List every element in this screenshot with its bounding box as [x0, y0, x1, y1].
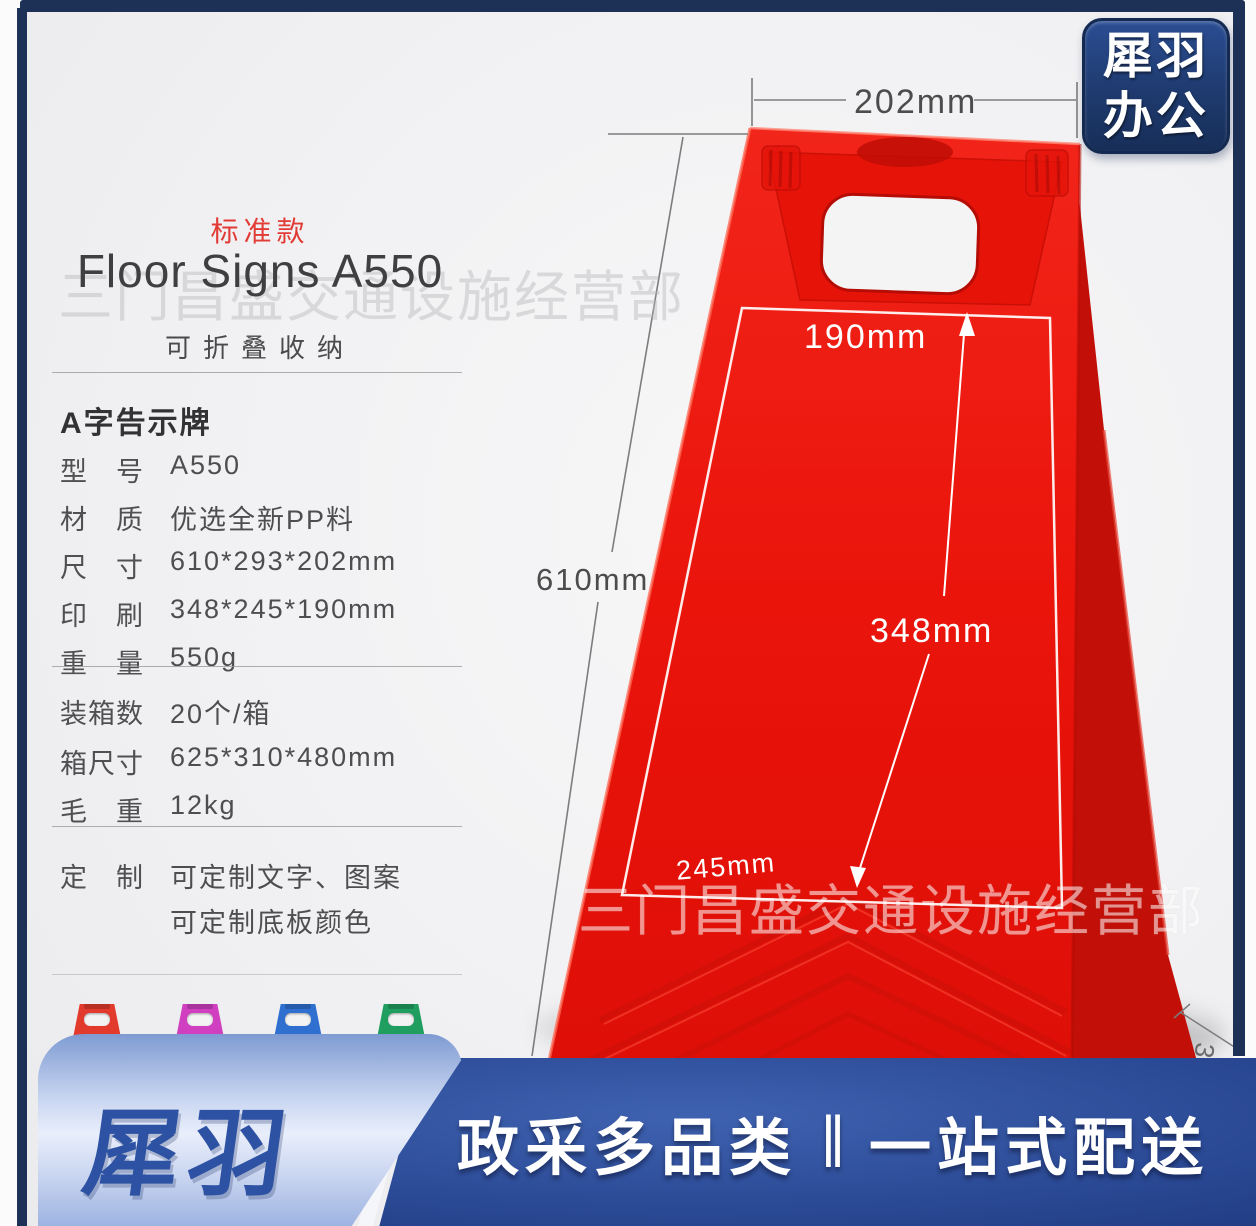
custom-value: 可定制底板颜色: [170, 901, 373, 940]
packing-label: 装箱数: [60, 692, 144, 731]
packing-value: 20个/箱: [170, 692, 272, 731]
banner-brand-logo: 犀羽: [76, 1076, 304, 1215]
brand-badge: 犀羽 办公: [1082, 18, 1230, 154]
product-photo: 202mm 610mm 348mm 190mm 245mm 3: [440, 40, 1256, 1100]
divider: [52, 974, 462, 975]
spec-value: 550g: [170, 642, 238, 673]
packing-value: 625*310*480mm: [170, 742, 397, 773]
variant-cap: [187, 1004, 214, 1009]
variant-handle-hole: [187, 1013, 213, 1026]
product-subtitle: 可折叠收纳: [52, 328, 468, 365]
spec-label: 型 号: [60, 450, 144, 489]
divider: [52, 826, 462, 827]
dim-print-height-label: 348mm: [870, 612, 993, 650]
dim-height-label: 610mm: [536, 562, 649, 597]
brand-badge-line2: 办公: [1103, 86, 1209, 146]
slogan-right: 一站式配送: [869, 1097, 1209, 1187]
brand-badge-line1: 犀羽: [1103, 26, 1209, 86]
custom-label: 定 制: [60, 856, 144, 895]
variant-sign-blue: [274, 1004, 322, 1038]
slogan-left: 政采多品类: [457, 1097, 797, 1187]
divider: [52, 372, 462, 373]
spec-label: 材 质: [60, 498, 144, 537]
packing-value: 12kg: [170, 790, 237, 821]
dim-top-width: 202mm: [752, 78, 1077, 138]
spec-value: 优选全新PP料: [170, 498, 355, 537]
spec-label: 重 量: [60, 642, 144, 681]
slogan-separator: ‖: [821, 1100, 845, 1184]
frame-border-left: [17, 8, 27, 1226]
spec-label: 印 刷: [60, 594, 144, 633]
variant-sign-green: [377, 1004, 425, 1038]
variant-handle-hole: [285, 1013, 311, 1026]
frame-border-top: [20, 0, 1245, 12]
product-title: Floor Signs A550: [40, 244, 480, 298]
packing-label: 毛 重: [60, 790, 144, 829]
spec-value: A550: [170, 450, 241, 481]
variant-sign-magenta: [176, 1004, 224, 1038]
packing-label: 箱尺寸: [60, 742, 144, 781]
spec-label: 尺 寸: [60, 546, 144, 585]
variant-handle-hole: [388, 1013, 414, 1026]
dim-print-top-label: 190mm: [804, 318, 927, 356]
spec-value: 610*293*202mm: [170, 546, 397, 577]
variant-cap: [388, 1004, 415, 1009]
variant-cap: [84, 1004, 111, 1009]
sign-rear-leg: [1064, 170, 1198, 1065]
divider: [52, 666, 462, 667]
section-heading: A字告示牌: [60, 398, 212, 442]
variant-sign-red: [73, 1004, 121, 1038]
banner-slogan: 政采多品类 ‖ 一站式配送: [430, 1058, 1236, 1226]
sign-handle: [768, 137, 1062, 305]
variant-handle-hole: [84, 1013, 110, 1026]
spec-value: 348*245*190mm: [170, 594, 397, 625]
frame-border-right: [1233, 8, 1245, 1056]
custom-value: 可定制文字、图案: [170, 856, 402, 895]
dim-top-width-label: 202mm: [854, 83, 977, 121]
variant-cap: [285, 1004, 312, 1009]
